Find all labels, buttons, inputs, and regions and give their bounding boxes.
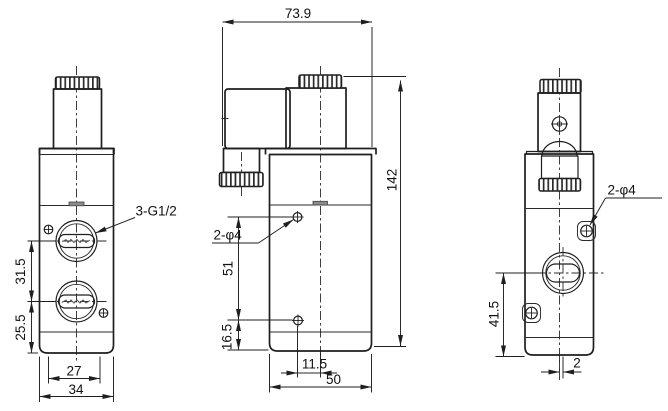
front-thread-callout: 3-G1/2	[96, 204, 177, 234]
technical-drawing-canvas: 3-G1/2 31.5 25.5 27 34	[0, 0, 668, 411]
side-hole-bottom	[292, 315, 304, 327]
dim-center-offset: 2	[573, 356, 581, 371]
front-screw-left	[44, 225, 53, 234]
back-dim-port-height: 41.5	[487, 273, 542, 357]
dim-hole-spacing: 51	[221, 261, 236, 276]
dim-screw-spacing: 27	[66, 364, 81, 379]
back-hole-label: 2-φ4	[608, 183, 637, 198]
dim-body-depth: 50	[326, 372, 341, 387]
connector-cap	[220, 173, 264, 187]
side-hole-label: 2-φ4	[214, 228, 243, 243]
side-manual-override-tab	[313, 201, 328, 205]
back-knurled-ring	[539, 179, 581, 192]
side-hole-top	[292, 211, 304, 223]
side-dim-overall-height: 142	[344, 77, 407, 347]
front-dim-widths: 27 34	[40, 357, 114, 403]
front-view: 3-G1/2 31.5 25.5 27 34	[13, 66, 177, 402]
front-dim-port-spacing: 31.5 25.5	[13, 241, 56, 353]
side-hole-callout: 2-φ4	[212, 220, 294, 244]
dim-port-to-bottom: 25.5	[13, 314, 28, 340]
dim-overall-width: 73.9	[285, 6, 311, 21]
front-screw-right	[99, 309, 108, 318]
dim-hole-to-bottom: 16.5	[220, 324, 235, 350]
back-view: 2-φ4 41.5 2	[487, 68, 663, 380]
side-coil-cap	[299, 75, 342, 88]
back-solenoid-cap	[540, 80, 581, 94]
side-coil-body	[286, 88, 346, 149]
dim-hole-offset: 11.5	[302, 357, 327, 372]
thread-label: 3-G1/2	[136, 204, 177, 219]
front-solenoid-body	[54, 89, 102, 149]
dim-overall-height: 142	[385, 169, 400, 192]
back-hole-callout: 2-φ4	[590, 183, 662, 226]
front-solenoid-cap	[56, 77, 100, 89]
dim-body-width: 34	[68, 382, 84, 397]
back-solenoid-screw	[551, 116, 568, 133]
dim-port-height: 41.5	[487, 301, 502, 327]
front-manual-override-tab	[69, 202, 84, 206]
din-connector	[225, 89, 290, 149]
side-view: 2-φ4 73.9 142 51 16.5	[212, 6, 406, 393]
back-dim-center-offset: 2	[541, 356, 582, 379]
valve-drawing: 3-G1/2 31.5 25.5 27 34	[0, 0, 668, 411]
dim-port-spacing: 31.5	[13, 258, 28, 284]
